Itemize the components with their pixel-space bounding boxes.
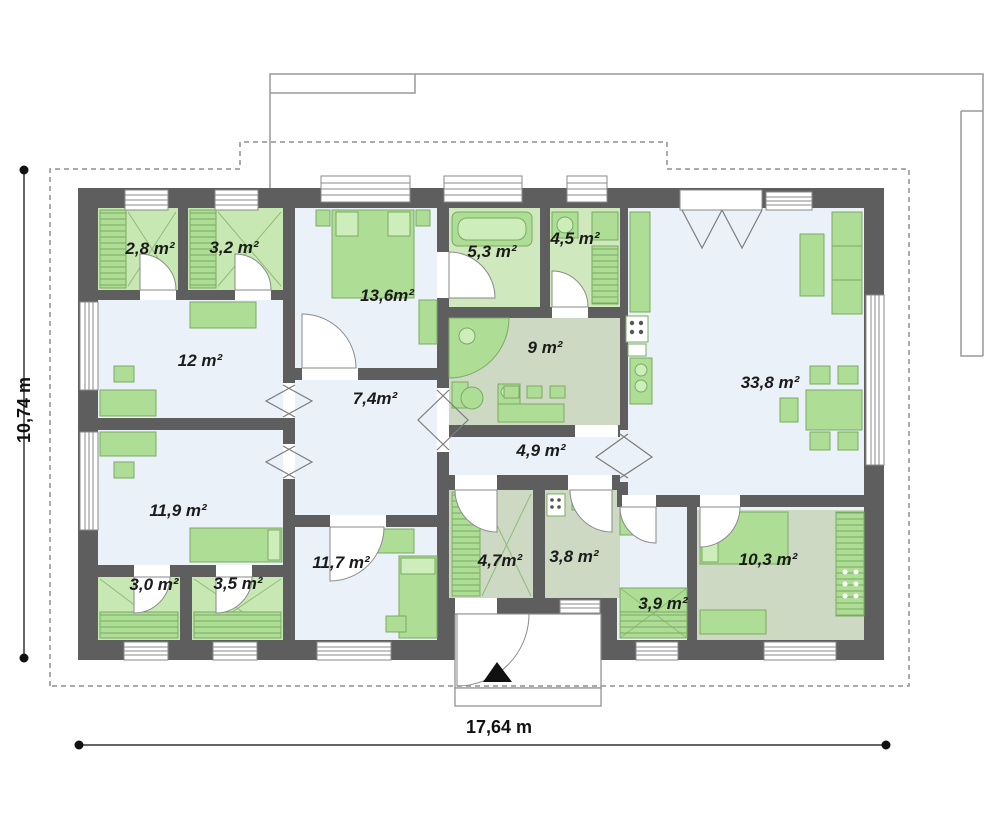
window-top-2 bbox=[215, 190, 258, 210]
room-label-vestibule: 4,7m² bbox=[477, 551, 524, 570]
room-label-room-11-7: 11,7 m² bbox=[312, 553, 371, 572]
height-dimension-label: 10,74 m bbox=[14, 377, 34, 443]
window-bottom-4 bbox=[636, 642, 678, 660]
room-label-room-12: 12 m² bbox=[178, 351, 224, 370]
room-label-wardrobe-a: 2,8 m² bbox=[124, 239, 175, 258]
room-label-bedroom-large: 13,6m² bbox=[360, 286, 415, 305]
window-entrance bbox=[560, 600, 600, 613]
room-label-bathroom: 5,3 m² bbox=[467, 242, 517, 261]
floor-plan-page: 10,74 m 17,64 m 2,8 m² 3,2 m² 13,6m² 5,3… bbox=[0, 0, 1000, 822]
window-bottom-5 bbox=[764, 642, 836, 660]
window-left-2 bbox=[80, 432, 98, 530]
room-label-wardrobe-b: 3,2 m² bbox=[209, 238, 259, 257]
room-label-utility: 4,5 m² bbox=[549, 229, 600, 248]
window-left-1 bbox=[80, 302, 98, 390]
window-right-1 bbox=[866, 295, 884, 465]
room-label-kitchen: 9 m² bbox=[528, 338, 564, 357]
window-bottom-1 bbox=[124, 642, 168, 660]
room-label-bedroom-10-3: 10,3 m² bbox=[739, 550, 799, 569]
entrance-porch bbox=[455, 614, 601, 706]
room-label-boiler-room: 3,8 m² bbox=[549, 547, 599, 566]
window-bottom-3 bbox=[317, 642, 391, 660]
floor-plan-drawing: 10,74 m 17,64 m 2,8 m² 3,2 m² 13,6m² 5,3… bbox=[0, 0, 1000, 822]
window-top-5 bbox=[567, 176, 607, 202]
room-label-living-room: 33,8 m² bbox=[741, 373, 801, 392]
width-dimension-label: 17,64 m bbox=[466, 717, 532, 737]
window-top-3 bbox=[321, 176, 410, 202]
room-label-hall: 7,4m² bbox=[353, 389, 399, 408]
room-label-room-11-9: 11,9 m² bbox=[149, 501, 208, 520]
window-bottom-2 bbox=[213, 642, 257, 660]
window-top-4 bbox=[444, 176, 522, 202]
window-top-6 bbox=[766, 192, 812, 210]
room-label-closet-3-9: 3,9 m² bbox=[638, 594, 688, 613]
room-label-wc: 3,0 m² bbox=[129, 575, 179, 594]
kitchen-counter-stove bbox=[626, 212, 652, 404]
terrace-french-door bbox=[680, 190, 762, 210]
room-label-closet-3-5: 3,5 m² bbox=[213, 574, 263, 593]
room-label-corridor: 4,9 m² bbox=[515, 441, 566, 460]
window-top-1 bbox=[125, 190, 168, 210]
dimension-bottom: 17,64 m bbox=[75, 717, 891, 750]
dimension-left: 10,74 m bbox=[14, 166, 34, 663]
